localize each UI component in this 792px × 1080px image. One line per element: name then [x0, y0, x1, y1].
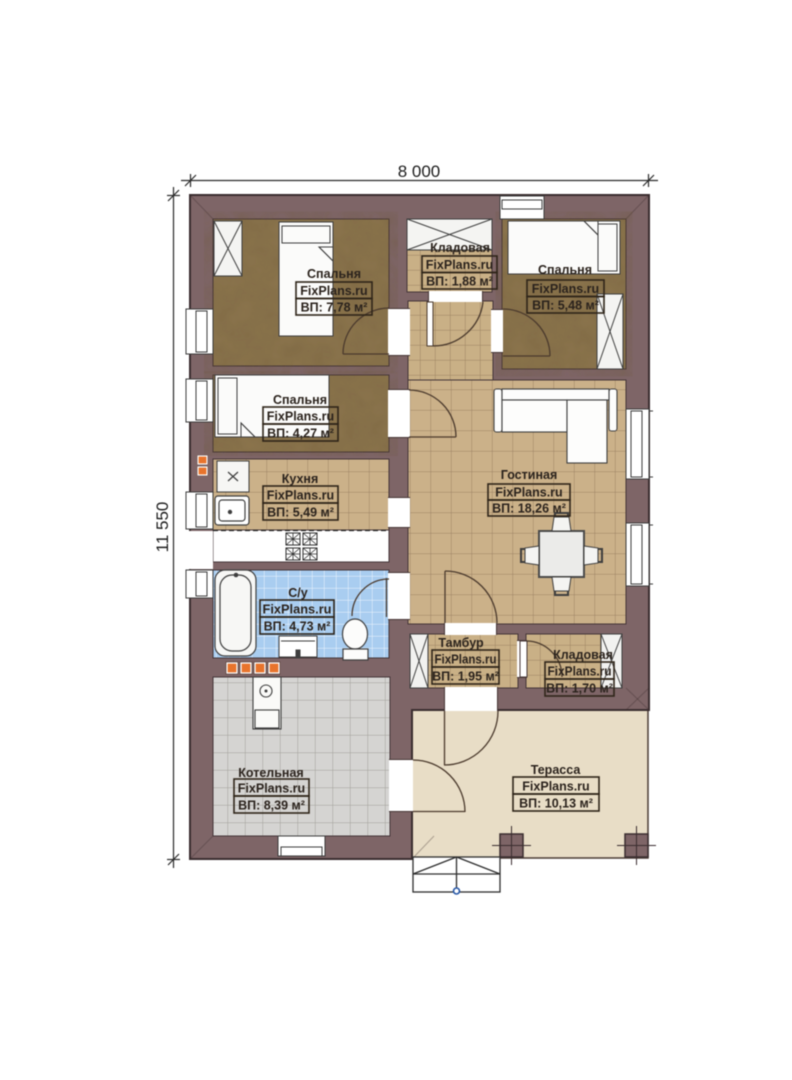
svg-text:11 550: 11 550	[153, 502, 172, 553]
svg-text:Гостиная: Гостиная	[501, 468, 558, 482]
svg-text:Спальня: Спальня	[307, 267, 361, 281]
svg-text:ВП: 1,95 м²: ВП: 1,95 м²	[432, 670, 499, 684]
svg-text:ВП: 8,39 м²: ВП: 8,39 м²	[238, 799, 305, 813]
svg-text:ВП: 5,48 м²: ВП: 5,48 м²	[532, 299, 599, 313]
svg-text:8 000: 8 000	[398, 162, 441, 181]
svg-text:ВП: 18,26 м²: ВП: 18,26 м²	[492, 502, 566, 516]
svg-text:Спальня: Спальня	[538, 263, 592, 277]
svg-text:FixPlans.ru: FixPlans.ru	[426, 258, 493, 272]
svg-text:FixPlans.ru: FixPlans.ru	[263, 603, 332, 617]
svg-text:ВП: 1,70 м²: ВП: 1,70 м²	[546, 682, 613, 696]
svg-text:FixPlans.ru: FixPlans.ru	[300, 284, 367, 298]
svg-text:ВП: 5,49 м²: ВП: 5,49 м²	[267, 506, 334, 520]
svg-text:FixPlans.ru: FixPlans.ru	[532, 282, 599, 296]
svg-text:Терасса: Терасса	[531, 763, 582, 777]
svg-text:FixPlans.ru: FixPlans.ru	[238, 782, 305, 796]
svg-text:ВП: 7,78 м²: ВП: 7,78 м²	[301, 301, 368, 315]
svg-text:Кладовая: Кладовая	[553, 648, 613, 662]
svg-text:Котельная: Котельная	[238, 766, 303, 780]
svg-text:С/у: С/у	[288, 586, 308, 600]
svg-text:ВП: 1,88 м²: ВП: 1,88 м²	[426, 275, 493, 289]
svg-text:ВП: 4,27 м²: ВП: 4,27 м²	[267, 427, 334, 441]
svg-text:FixPlans.ru: FixPlans.ru	[495, 486, 562, 500]
svg-text:ВП: 4,73 м²: ВП: 4,73 м²	[264, 620, 331, 634]
svg-text:FixPlans.ru: FixPlans.ru	[522, 780, 589, 794]
svg-text:FixPlans.ru: FixPlans.ru	[435, 653, 497, 667]
svg-text:FixPlans.ru: FixPlans.ru	[267, 410, 334, 424]
svg-text:FixPlans.ru: FixPlans.ru	[548, 665, 612, 679]
svg-text:Кладовая: Кладовая	[430, 241, 490, 255]
svg-text:FixPlans.ru: FixPlans.ru	[267, 489, 334, 503]
svg-text:Спальня: Спальня	[273, 393, 327, 407]
svg-text:Тамбур: Тамбур	[438, 636, 484, 650]
svg-text:ВП: 10,13 м²: ВП: 10,13 м²	[519, 797, 593, 811]
svg-text:Кухня: Кухня	[282, 472, 319, 486]
